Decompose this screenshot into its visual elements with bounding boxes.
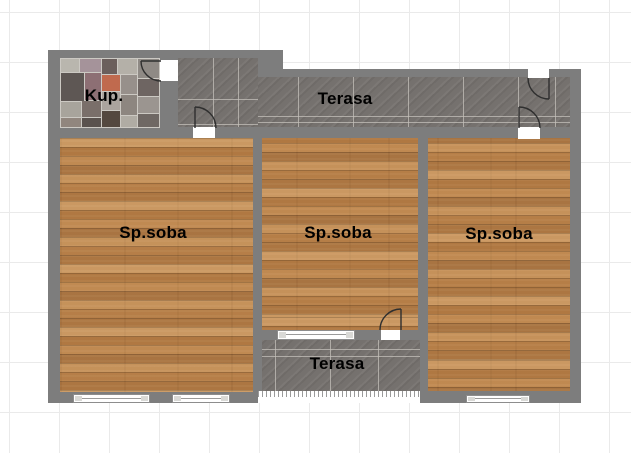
door-arc-middle-bedroom-icon	[380, 309, 401, 330]
room-label-kup: Kup.	[85, 86, 124, 106]
room-label-sp-soba-middle: Sp.soba	[304, 223, 372, 243]
room-label-sp-soba-right: Sp.soba	[465, 224, 533, 244]
door-arc-right-bedroom-icon	[519, 107, 540, 128]
room-label-terasa-bottom: Terasa	[310, 354, 365, 374]
door-arc-bathroom-icon	[141, 61, 161, 81]
room-label-terasa-top: Terasa	[318, 89, 373, 109]
door-arc-left-bedroom-icon	[195, 107, 216, 128]
floor-plan-canvas: Kup. Terasa Sp.soba Sp.soba Sp.soba Tera…	[0, 0, 631, 453]
room-label-sp-soba-left: Sp.soba	[119, 223, 187, 243]
door-arc-entrance-icon	[528, 78, 549, 99]
